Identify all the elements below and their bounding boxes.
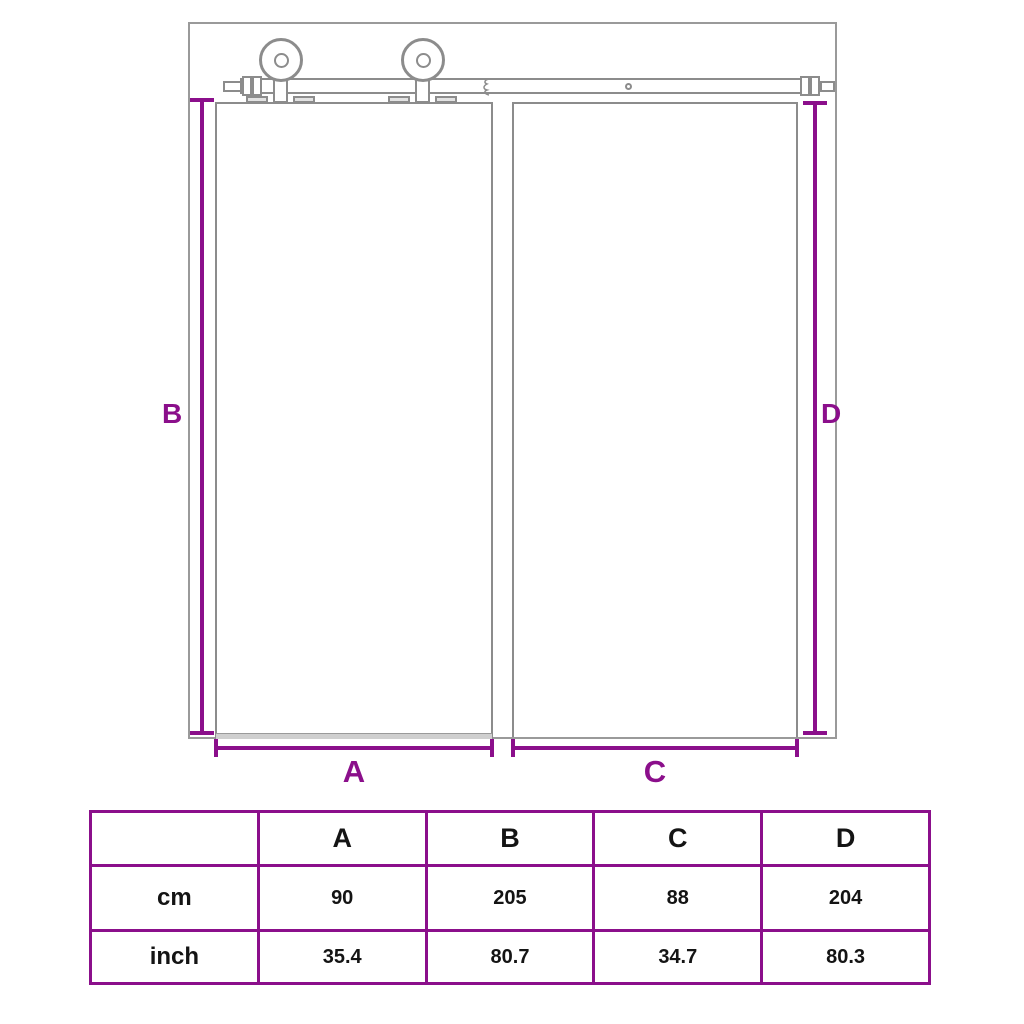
unit-label-cm: cm xyxy=(91,866,259,931)
mount-plate xyxy=(293,96,315,103)
sliding-rail xyxy=(240,78,802,94)
dimension-cap xyxy=(803,731,827,735)
door-panel xyxy=(215,102,493,739)
dimension-line-c xyxy=(511,746,799,750)
roller-hub-right xyxy=(416,53,431,68)
table-header-row: A B C D xyxy=(91,812,930,866)
rail-end-ring-right xyxy=(810,76,820,96)
mount-plate xyxy=(388,96,410,103)
value-a-inch: 35.4 xyxy=(258,931,426,984)
table-row-inch: inch 35.4 80.7 34.7 80.3 xyxy=(91,931,930,984)
mount-plate xyxy=(246,96,268,103)
dimension-line-a xyxy=(214,746,494,750)
dimension-cap xyxy=(190,98,214,102)
mount-plate xyxy=(435,96,457,103)
dimension-label-c: C xyxy=(511,754,799,790)
rail-end-ring-right xyxy=(800,76,810,96)
value-a-cm: 90 xyxy=(258,866,426,931)
header-c: C xyxy=(594,812,762,866)
dimension-line-d xyxy=(813,103,817,734)
doorway-opening xyxy=(512,102,798,737)
header-d: D xyxy=(762,812,930,866)
header-a: A xyxy=(258,812,426,866)
rail-end-ring-left xyxy=(252,76,262,96)
rail-end-cap-left xyxy=(223,81,242,92)
door-bottom-edge xyxy=(216,733,492,739)
value-b-cm: 205 xyxy=(426,866,594,931)
dimension-cap xyxy=(190,731,214,735)
value-c-inch: 34.7 xyxy=(594,931,762,984)
dimension-label-d: D xyxy=(821,398,841,430)
rail-end-cap-right xyxy=(820,81,835,92)
header-b: B xyxy=(426,812,594,866)
header-unit-blank xyxy=(91,812,259,866)
dimension-line-b xyxy=(200,100,204,734)
rail-bracket-clip xyxy=(481,78,491,101)
roller-hub-left xyxy=(274,53,289,68)
dimension-label-a: A xyxy=(214,754,494,790)
unit-label-inch: inch xyxy=(91,931,259,984)
rail-end-ring-left xyxy=(242,76,252,96)
value-d-cm: 204 xyxy=(762,866,930,931)
value-b-inch: 80.7 xyxy=(426,931,594,984)
dimensions-table: A B C D cm 90 205 88 204 inch 35.4 80.7 … xyxy=(89,810,931,985)
table-row-cm: cm 90 205 88 204 xyxy=(91,866,930,931)
rail-mounting-hole xyxy=(625,83,632,90)
value-c-cm: 88 xyxy=(594,866,762,931)
dimension-label-b: B xyxy=(162,398,182,430)
product-dimension-diagram: B D A C A B C D cm 90 205 88 204 inch 35… xyxy=(0,0,1024,1024)
dimension-cap xyxy=(803,101,827,105)
value-d-inch: 80.3 xyxy=(762,931,930,984)
